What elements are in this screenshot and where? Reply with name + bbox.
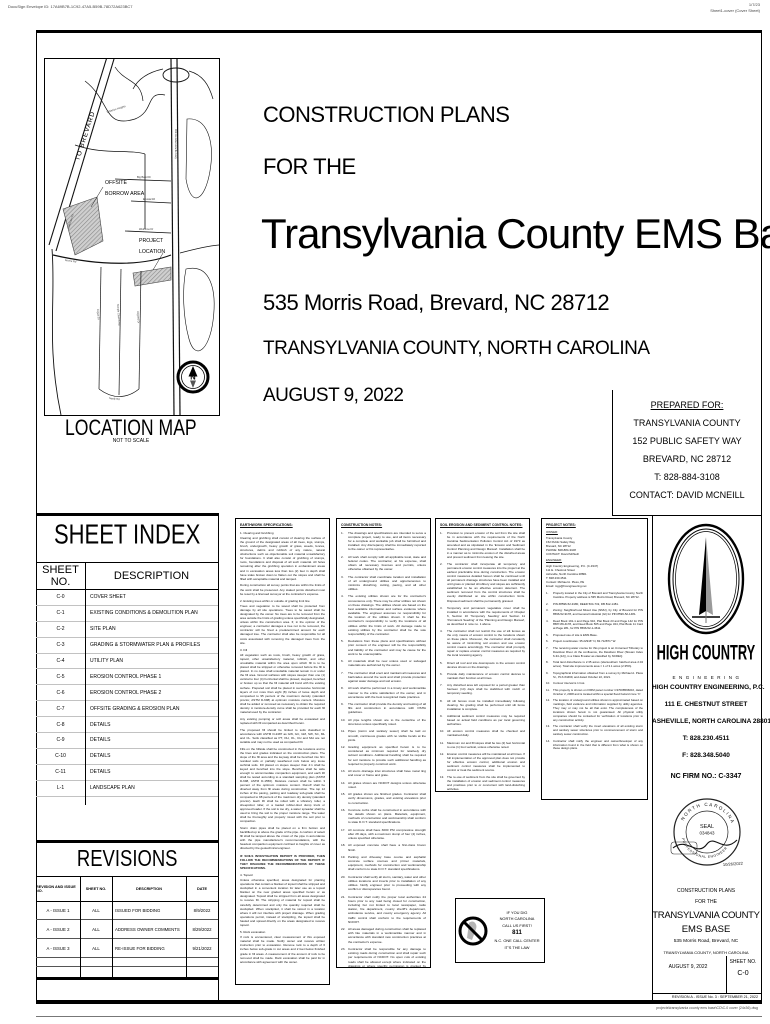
firm-license-no: NC FIRM NO.: C-3347	[652, 773, 760, 780]
project-notes-list: Property located in the City of Brevard …	[546, 592, 643, 751]
map-street-bigbend: Big Bend Dr	[137, 175, 151, 179]
map-street-hendersonville: Old Hendersonville Hwy	[174, 129, 178, 159]
construction-note: All work shall comply with all applicabl…	[341, 555, 426, 572]
earthwork-block: Unless otherwise specified, areas design…	[240, 878, 325, 927]
title-kicker-2: FOR THE	[263, 154, 356, 180]
prepared-for-line: TRANSYLVANIA COUNTY	[614, 414, 760, 432]
map-callout-project-2: LOCATION	[139, 249, 165, 255]
tb-for-the: FOR THE	[652, 899, 760, 905]
map-street-ecusta: Ecusta Rd	[143, 197, 156, 201]
project-notes-title: PROJECT NOTES:	[546, 523, 643, 528]
construction-note: The contractor shall coordinate location…	[341, 575, 426, 592]
owner-label: OWNER:	[546, 531, 643, 535]
project-note: The receiving water course for this proj…	[546, 647, 643, 659]
sheet-description: UTILITY PLAN	[85, 658, 218, 664]
seal-date: 10/26/2022	[723, 861, 744, 867]
construction-note: All concrete shall have 3000 PSI compres…	[341, 828, 426, 841]
project-note: Proposed use of site is EMS Base.	[546, 634, 643, 638]
erosion-notes-title: SOIL EROSION AND SEDIMENT CONTROL NOTES:	[440, 523, 525, 528]
engineer-seal: NORTH CAROLINA PROFESSIONAL ENGINEER SEA…	[667, 792, 747, 878]
sheet-number: C-5	[36, 674, 85, 680]
rev-col-date: DATE	[186, 876, 218, 901]
index-column-divider	[85, 562, 86, 805]
tb-county: TRANSYLVANIA COUNTY	[652, 910, 760, 921]
tb-address: 535 Morris Road, Brevard, NC	[652, 939, 760, 944]
revision-sheet: ALL	[80, 927, 112, 932]
location-map-title: LOCATION MAP	[44, 416, 218, 439]
prepared-for-line: BREVARD, NC 28712	[614, 450, 760, 468]
sheet-index-title: SHEET INDEX	[36, 519, 218, 548]
construction-note: All pipe lengths shown are to the center…	[341, 718, 426, 726]
map-callout-project-1: PROJECT	[139, 238, 164, 244]
page-edge-line	[36, 1016, 762, 1017]
revision-date: 9/21/2022	[186, 946, 218, 951]
sheet-number: C-4	[36, 658, 85, 664]
map-callout-offsite-1: OFFSITE	[105, 180, 127, 186]
construction-note: Deviations from these plans and specific…	[341, 639, 426, 656]
revisions-top-border	[36, 840, 218, 843]
earthwork-block: Trees and vegetation to be saved shall b…	[240, 604, 325, 644]
revision-row: A - ISSUE 2 ALL ADDRESS OWNER COMMENTS 8…	[36, 920, 218, 939]
erosion-note: The re-use of sediment from the site sha…	[440, 775, 525, 791]
sheet-no-value: C-0	[726, 970, 760, 977]
north-arrow-icon: N	[178, 362, 208, 392]
earthwork-block: 4. Topsoil	[240, 873, 325, 877]
rev-col-sheet: SHEET NO.	[80, 876, 112, 901]
index-col-description: DESCRIPTION	[85, 570, 218, 582]
earthwork-block: If rock is encountered, clear measuremen…	[240, 935, 325, 963]
sheet-number: C-8	[36, 722, 85, 728]
rev-divider-1	[80, 876, 81, 977]
sheet-description: EROSION CONTROL PHASE 1	[85, 674, 218, 680]
firm-wordmark: HIGH COUNTRY	[652, 640, 760, 658]
sheet-number: C-11	[36, 769, 85, 775]
rev-col-desc: DESCRIPTION	[112, 876, 186, 901]
erosion-notes: SOIL EROSION AND SEDIMENT CONTROL NOTES:…	[435, 518, 530, 792]
index-col-sheet-no: SHEET NO.	[36, 564, 85, 588]
prepared-for-line: T: 828-884-3108	[614, 468, 760, 486]
construction-note: All grades shown are finished grades. Co…	[341, 792, 426, 805]
earthwork-block: 1. Clearing and Grubbing	[240, 531, 325, 535]
revision-issue: A - ISSUE 1	[36, 908, 80, 913]
sheet-index-rows: C-0 COVER SHEET C-1 EXISTING CONDITIONS …	[36, 590, 218, 797]
left-region-divider	[218, 513, 219, 1001]
tb-ems-base: EMS BASE	[652, 924, 760, 935]
sheet-index-header: SHEET NO. DESCRIPTION	[36, 562, 218, 590]
border-bottom	[36, 1000, 762, 1004]
construction-note: All exposed concrete shall have a first-…	[341, 843, 426, 851]
sheet-description: DETAILS	[85, 737, 218, 743]
project-notes: PROJECT NOTES: OWNER: Transylvania Count…	[541, 518, 648, 800]
project-note: Total land disturbance is 2.35 acres (si…	[546, 661, 643, 669]
location-map: TO BREVARD Gallimore Rd Old Hendersonvil…	[44, 58, 220, 416]
tb-construction-plans: CONSTRUCTION PLANS	[652, 888, 760, 894]
sheet-number: C-3	[36, 642, 85, 648]
owner-line: CONTACT: David McNeill	[546, 552, 643, 556]
owner-lines: Transylvania County152 Public Safety Way…	[546, 536, 643, 556]
corner-file: Sheet1-cover (Cover Sheet)	[710, 8, 760, 14]
sheet-description: DETAILS	[85, 769, 218, 775]
revisions-rows: A - ISSUE 1 ALL ISSUED FOR BIDDING 8/9/2…	[36, 901, 218, 958]
construction-note: Contractor shall be responsible for any …	[341, 947, 426, 968]
revision-row: A - ISSUE 1 ALL ISSUED FOR BIDDING 8/9/2…	[36, 901, 218, 920]
erosion-note: All silt fences must be installed immedi…	[440, 699, 525, 711]
sheet-number: C-2	[36, 626, 85, 632]
sheet-index-row: C-4 UTILITY PLAN	[36, 654, 218, 670]
earthwork-block: All vegetation such as roots, brush, hea…	[240, 653, 325, 714]
erosion-note: Provision to prevent erosion of the soil…	[440, 531, 525, 559]
construction-note: All grates shown are NCDOT designs unles…	[341, 781, 426, 789]
location-map-subtitle: NOT TO SCALE	[44, 438, 218, 444]
erosion-note: Maximum cut and fill slopes shall be two…	[440, 741, 525, 749]
construction-note: All areas damaged during construction sh…	[341, 927, 426, 944]
sheet-description: COVER SHEET	[85, 594, 218, 600]
earthwork-block: The proposed fill should be limited to s…	[240, 728, 325, 744]
prepared-for-border-left	[612, 390, 613, 515]
earthwork-block: Fills on the hillside shall be construct…	[240, 747, 325, 824]
title-kicker-1: CONSTRUCTION PLANS	[263, 102, 509, 128]
dig-line: N.C. ONE CALL CENTER	[490, 938, 544, 944]
prepared-for-border-bottom	[612, 515, 762, 516]
prepared-for-line: 152 PUBLIC SAFETY WAY	[614, 432, 760, 450]
firm-phone: T: 828.230.4511	[652, 735, 760, 742]
project-address: 535 Morris Road, Brevard, NC 28712	[263, 290, 609, 316]
revision-sheet: ALL	[80, 946, 112, 951]
call-811-box: IF YOU DIG NORTH CAROLINA CALL US FIRST!…	[455, 898, 545, 963]
prepared-for-line: CONTACT: DAVID MCNEILL	[614, 486, 760, 504]
construction-notes-title: CONSTRUCTION NOTES:	[341, 523, 426, 528]
border-right	[761, 30, 762, 1004]
sheet-number: C-9	[36, 737, 85, 743]
dig-line: IT'S THE LAW	[490, 945, 544, 951]
project-note: The contractor shall verify the invert e…	[546, 725, 643, 737]
sheet-index-row: L-1 LANDSCAPE PLAN	[36, 781, 218, 797]
sheet-index-row: C-5 EROSION CONTROL PHASE 1	[36, 669, 218, 685]
revisions-bottom-border	[36, 977, 218, 980]
location-map-drawing: TO BREVARD Gallimore Rd Old Hendersonvil…	[45, 59, 219, 415]
sheet-index-row: C-3 GRADING & STORMWATER PLAN & PROFILES	[36, 638, 218, 654]
sheet-index-row: C-2 SITE PLAN	[36, 622, 218, 638]
erosion-note: Any disturbed area left exposed for a pe…	[440, 683, 525, 695]
sheet-number: L-1	[36, 785, 85, 791]
engineer-lines: High Country Engineering, P.C. (C-3347)1…	[546, 564, 643, 588]
revision-note: REVISION A - ISSUE No. 3 : SEPTEMBER 21,…	[608, 995, 758, 999]
firm-logo	[666, 522, 746, 636]
erosion-note: The contractor shall incorporate all tem…	[440, 562, 525, 602]
project-note: Deed Book 191-1 and Page 910, Plat Book …	[546, 620, 643, 632]
construction-notes: CONSTRUCTION NOTES: The drawings and spe…	[336, 518, 431, 968]
sheet-index-row: C-8 DETAILS	[36, 717, 218, 733]
erosion-note: Erosion control measures will be maintai…	[440, 752, 525, 772]
project-note: Zoning: Neighborhood Mixed Use (NMU), by…	[546, 609, 643, 617]
revision-issue: A - ISSUE 3	[36, 946, 80, 951]
prepared-for-block: PREPARED FOR: TRANSYLVANIA COUNTY 152 PU…	[614, 396, 760, 504]
earthwork-block: 5. Rock excavation	[240, 930, 325, 934]
earthwork-specifications: EARTHWORK SPECIFICATIONS: 1. Clearing an…	[235, 518, 330, 985]
earthwork-block: During construction all survey points th…	[240, 583, 325, 595]
sheet-description: DETAILS	[85, 722, 218, 728]
seal-number: 034843	[699, 831, 715, 836]
construction-note: All work shall be performed in a timely …	[341, 686, 426, 699]
sheet-description: DETAILS	[85, 753, 218, 759]
sheet-description: LANDSCAPE PLAN	[85, 785, 218, 791]
construction-note: Contractor shall notify the proper local…	[341, 895, 426, 924]
sheet-description: GRADING & STORMWATER PLAN & PROFILES	[85, 642, 218, 648]
map-street-welcome: Welcome Dr	[139, 227, 153, 231]
project-note: Property located in the City of Brevard …	[546, 592, 643, 600]
construction-note: All storm drainage inlet structures shal…	[341, 769, 426, 777]
sheet-index-row: C-11 DETAILS	[36, 765, 218, 781]
earthwork-block: IF SOILS INVESTIGATION REPORT IS PROVIDE…	[240, 854, 325, 870]
earthwork-block: Clearing and grubbing shall consist of c…	[240, 536, 325, 581]
map-callout-offsite-2: BORROW AREA	[105, 191, 145, 197]
sheet-description: SITE PLAN	[85, 626, 218, 632]
earthwork-block: 3. Fill	[240, 648, 325, 652]
earthwork-block: 2. Existing trees within or outside of g…	[240, 599, 325, 603]
project-note: Topographical information obtained from …	[546, 672, 643, 680]
project-note: This property is shown on FIRM panel num…	[546, 689, 643, 697]
project-note: PIN #8596-52-9180, DEED 504-719, DB 812-…	[546, 603, 643, 607]
high-country-logo-icon	[666, 522, 746, 636]
project-note: Project coordinates: 35.22916° N, 82.712…	[546, 640, 643, 644]
project-county: TRANSYLVANIA COUNTY, NORTH CAROLINA	[263, 338, 650, 360]
sheet-index-row: C-6 EROSION CONTROL PHASE 2	[36, 685, 218, 701]
prepared-for-heading: PREPARED FOR:	[614, 396, 760, 414]
cover-sheet: DocuSign Envelope ID: 17A69B7B-1C92-47A5…	[0, 0, 770, 1024]
file-path: projects\transylvania county ems base\CD…	[656, 1006, 758, 1010]
revision-description: RE-ISSUE FOR BIDDING	[112, 946, 186, 951]
erosion-note: Temporary and permanent vegetative cover…	[440, 606, 525, 626]
sheet-number: C-7	[36, 706, 85, 712]
project-note: Contractor shall notify the engineer and…	[546, 740, 643, 752]
docusign-envelope-id: DocuSign Envelope ID: 17A69B7B-1C92-47A5…	[8, 4, 133, 9]
construction-note: Parking and driveway base course and asp…	[341, 855, 426, 872]
sheet-index-row: C-0 COVER SHEET	[36, 590, 218, 606]
border-top	[36, 30, 762, 33]
sheet-index-row: C-10 DETAILS	[36, 749, 218, 765]
construction-note: The contractor shall provide the density…	[341, 702, 426, 715]
construction-note: Pipes (storm and sanitary sewer) shall b…	[341, 729, 426, 742]
firm-wordmark-sub: ENGINEERING	[652, 666, 760, 684]
erosion-note: Additional sediment control measures may…	[440, 714, 525, 726]
revision-sheet: ALL	[80, 908, 112, 913]
index-top-border	[36, 513, 218, 516]
construction-note: The drawings and specifications are inte…	[341, 531, 426, 552]
construction-note: Concrete curbs shall be constructed in a…	[341, 808, 426, 825]
earthwork-block: Storm drain pipes shall be placed on a f…	[240, 826, 325, 850]
construction-note: The existing utilities shown are for the…	[341, 594, 426, 636]
sheet-number: C-0	[36, 594, 85, 600]
firm-city: ASHEVILLE, NORTH CAROLINA 28801	[652, 718, 760, 725]
firm-address: 111 E. CHESTNUT STREET	[652, 701, 760, 708]
rev-divider-2	[112, 876, 113, 977]
dig-number: 811	[490, 929, 544, 939]
construction-note: Grading equipment as specified herein is…	[341, 745, 426, 766]
sheet-description: EXISTING CONDITIONS & DEMOLITION PLAN	[85, 610, 218, 616]
sheet-number: C-6	[36, 690, 85, 696]
erosion-note: Direct all roof and site downspouts to t…	[440, 661, 525, 669]
tb-county-state: TRANSYLVANIA COUNTY, NORTH CAROLINA	[652, 950, 760, 955]
map-street-whitmire: Whitmire Heights	[106, 104, 127, 114]
revision-issue: A - ISSUE 2	[36, 927, 80, 932]
firm-fax: F: 828.348.5040	[652, 752, 760, 759]
sheet-description: EROSION CONTROL PHASE 2	[85, 690, 218, 696]
sheet-no-label: SHEET NO.	[726, 959, 760, 965]
engineer-label: ENGINEER:	[546, 559, 643, 563]
construction-notes-list: The drawings and specifications are inte…	[341, 531, 426, 968]
revisions-title: REVISIONS	[36, 846, 218, 870]
call-811-text: IF YOU DIG NORTH CAROLINA CALL US FIRST!…	[490, 910, 544, 951]
rev-col-issue: REVISION AND ISSUE NO.	[36, 876, 80, 901]
rev-divider-3	[186, 876, 187, 977]
revisions-header: REVISION AND ISSUE NO. SHEET NO. DESCRIP…	[36, 876, 218, 902]
sheet-number: C-10	[36, 753, 85, 759]
sheet-index-row: C-7 OFFSITE GRADING & EROSION PLAN	[36, 701, 218, 717]
north-letter: N	[190, 373, 195, 382]
erosion-note: The contractor shall not restrict the us…	[440, 629, 525, 657]
revision-date: 8/29/2022	[186, 927, 218, 932]
erosion-note: All erosion control measures shall be ch…	[440, 729, 525, 737]
earthwork-block: Any existing pumping or soft areas shall…	[240, 717, 325, 725]
firm-name: HIGH COUNTRY ENGINEERING, P.C.	[652, 684, 760, 691]
project-note: The location of underground utilities sh…	[546, 699, 643, 723]
tb-date: AUGUST 9, 2022	[652, 964, 724, 970]
construction-note: All materials shall be new unless used o…	[341, 659, 426, 667]
sheet-index-row: C-9 DETAILS	[36, 733, 218, 749]
earthwork-block: EARTHWORK SPECIFICATIONS:	[240, 523, 325, 528]
revision-description: ADDRESS OWNER COMMENTS	[112, 927, 186, 932]
revision-date: 8/9/2022	[186, 908, 218, 913]
sheet-description: OFFSITE GRADING & EROSION PLAN	[85, 706, 218, 712]
project-date: AUGUST 9, 2022	[263, 385, 404, 407]
erosion-note: Provide daily maintenance of erosion con…	[440, 672, 525, 680]
sheet-index-row: C-1 EXISTING CONDITIONS & DEMOLITION PLA…	[36, 606, 218, 622]
project-title: Transylvania County EMS Base	[261, 210, 770, 258]
no-dig-icon	[456, 901, 490, 961]
seal-label: SEAL	[700, 824, 714, 830]
map-street-fegan: Fegan Dr	[96, 309, 101, 320]
seal-icon: NORTH CAROLINA PROFESSIONAL ENGINEER SEA…	[667, 792, 747, 878]
erosion-notes-list: Provision to prevent erosion of the soil…	[440, 531, 525, 792]
corner-meta: 1/7/23 Sheet1-cover (Cover Sheet)	[710, 2, 760, 13]
project-note: Contour interval is 1 foot.	[546, 682, 643, 686]
construction-note: Contractor shall verify all storm, sanit…	[341, 875, 426, 892]
revision-row-empty	[36, 966, 218, 977]
sheet-number: C-1	[36, 610, 85, 616]
construction-note: The contractor shall erect and maintain …	[341, 671, 426, 684]
revision-description: ISSUED FOR BIDDING	[112, 908, 186, 913]
